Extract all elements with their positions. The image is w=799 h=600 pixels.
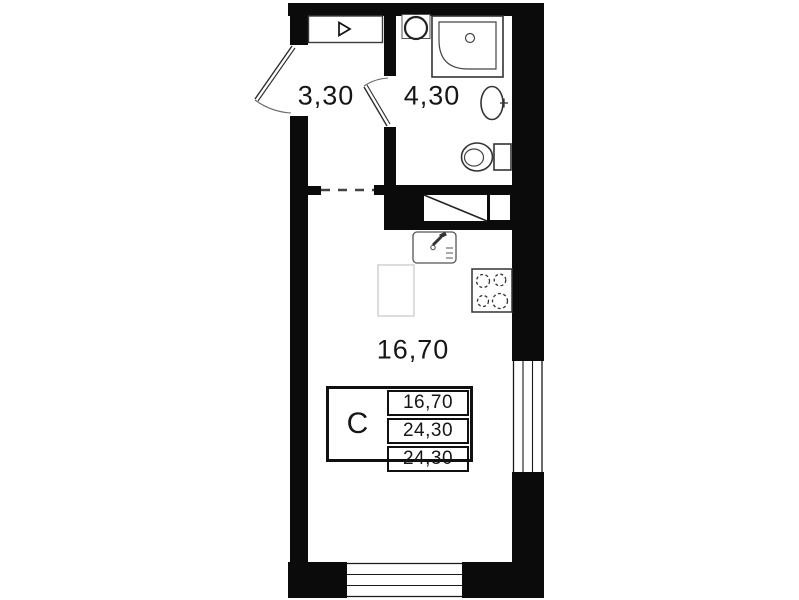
wall-bath-bottom-stub (374, 185, 384, 195)
bathroom-sink-icon (402, 15, 430, 40)
legend-unit-type: C (329, 389, 386, 459)
wall-partition-upper (384, 16, 396, 76)
bathroom-door-icon (364, 78, 390, 126)
wall-left-lower (290, 116, 308, 566)
window-right-icon (512, 361, 544, 472)
washbasin-icon (481, 87, 508, 120)
wall-hall-stub (308, 186, 321, 195)
stove-icon (472, 269, 512, 312)
shower-outline (432, 16, 503, 77)
wall-bottom-left (288, 562, 347, 598)
living-area-label: 16,70 (377, 335, 450, 366)
shower-drain (466, 34, 475, 43)
furniture-faint-outline (378, 265, 414, 316)
toilet-icon (462, 143, 512, 171)
kitchen-sink-icon (413, 232, 456, 263)
window-bottom-glass (347, 562, 462, 598)
wall-partition-lower (384, 127, 396, 187)
bathroom-door-swing-arc (364, 78, 388, 86)
vent-shaft-right (490, 195, 510, 220)
shower-icon (432, 16, 503, 77)
floor-plan-drawing (0, 0, 799, 600)
legend-values-column: 16,70 24,30 24,30 (386, 389, 470, 459)
entry-door-swing-arc (255, 100, 291, 113)
wall-right-lower (512, 472, 544, 598)
bathroom-area-label: 4,30 (404, 81, 461, 112)
entry-door-leaf-b (258, 48, 295, 101)
window-bottom-icon (347, 562, 462, 598)
stove-outline (472, 269, 512, 312)
window-right-glass (512, 361, 544, 472)
legend-value-total-area: 24,30 (387, 418, 469, 444)
kitchen-sink-faucet-head (440, 234, 446, 237)
bathroom-door-leaf-a (364, 87, 387, 126)
bathroom-door-leaf-b (367, 85, 390, 124)
wall-left-upper (290, 3, 308, 45)
floor-plan: 3,30 4,30 16,70 C 16,70 24,30 24,30 (0, 0, 799, 600)
legend-value-living-area: 16,70 (387, 390, 469, 416)
toilet-bowl (462, 143, 493, 171)
washbasin-bowl (481, 87, 503, 120)
entry-door-icon (255, 46, 295, 113)
legend-value-total-area-with-balcony: 24,30 (387, 446, 469, 472)
hall-area-label: 3,30 (298, 81, 355, 112)
bathroom-sink-bowl (405, 17, 427, 39)
hall-cabinet-icon (309, 16, 383, 43)
entry-door-leaf-a (255, 46, 292, 99)
wall-right-upper (512, 3, 544, 361)
legend-table: C 16,70 24,30 24,30 (326, 386, 473, 462)
toilet-tank (494, 144, 511, 170)
